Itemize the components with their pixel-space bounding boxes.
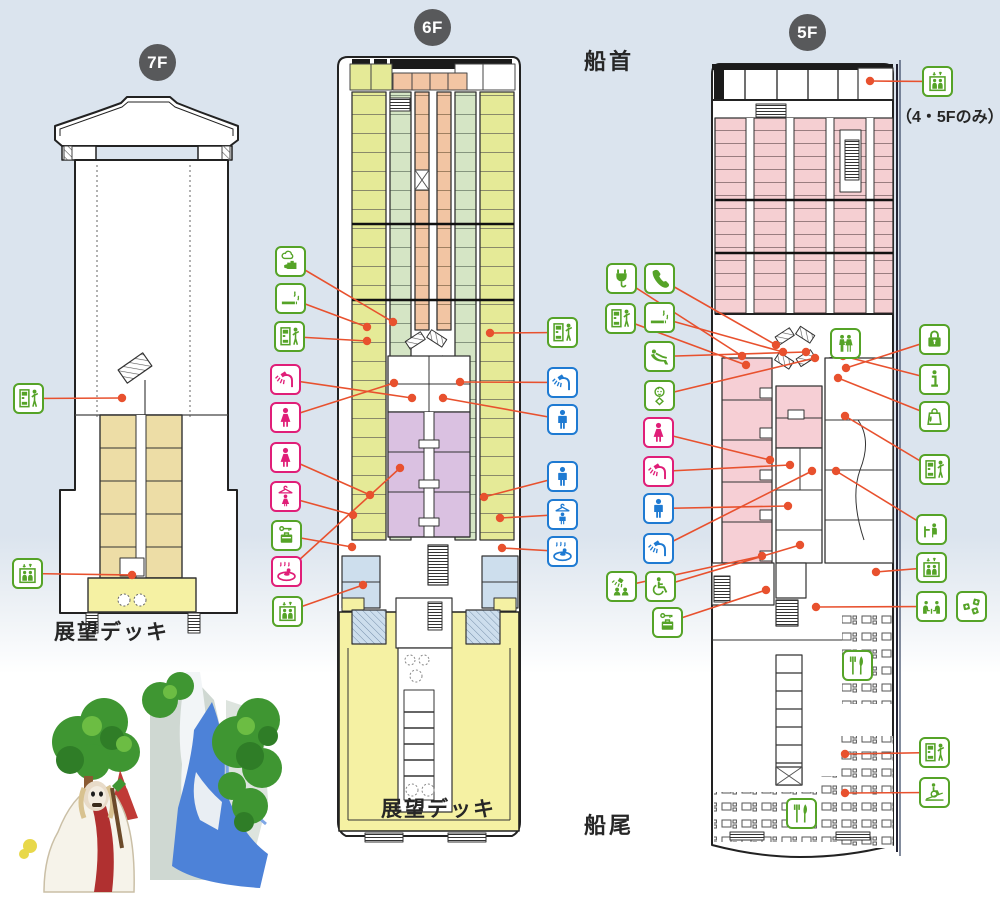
deck-plan-7f: [55, 97, 238, 633]
bow-label: 船首: [584, 44, 634, 76]
deck-plan-5f: [712, 60, 900, 857]
deck-plans-graphic: [0, 0, 1000, 923]
deck-plan-6f: [338, 57, 520, 842]
observation-deck-label-7f: 展望デッキ: [54, 616, 169, 646]
waterfall-folklore-illustration: [19, 672, 282, 892]
deck-plan-page: 7F 6F 5F 船首 船尾 （4・5Fのみ） 展望デッキ 展望デッキ: [0, 0, 1000, 923]
floor-badge-7f: 7F: [139, 44, 176, 81]
floor-badge-6f: 6F: [414, 9, 451, 46]
stern-label: 船尾: [584, 808, 634, 840]
elevator-note-45f: （4・5Fのみ）: [896, 103, 1000, 127]
floor-badge-5f: 5F: [789, 14, 826, 51]
observation-deck-label-6f: 展望デッキ: [381, 793, 496, 823]
